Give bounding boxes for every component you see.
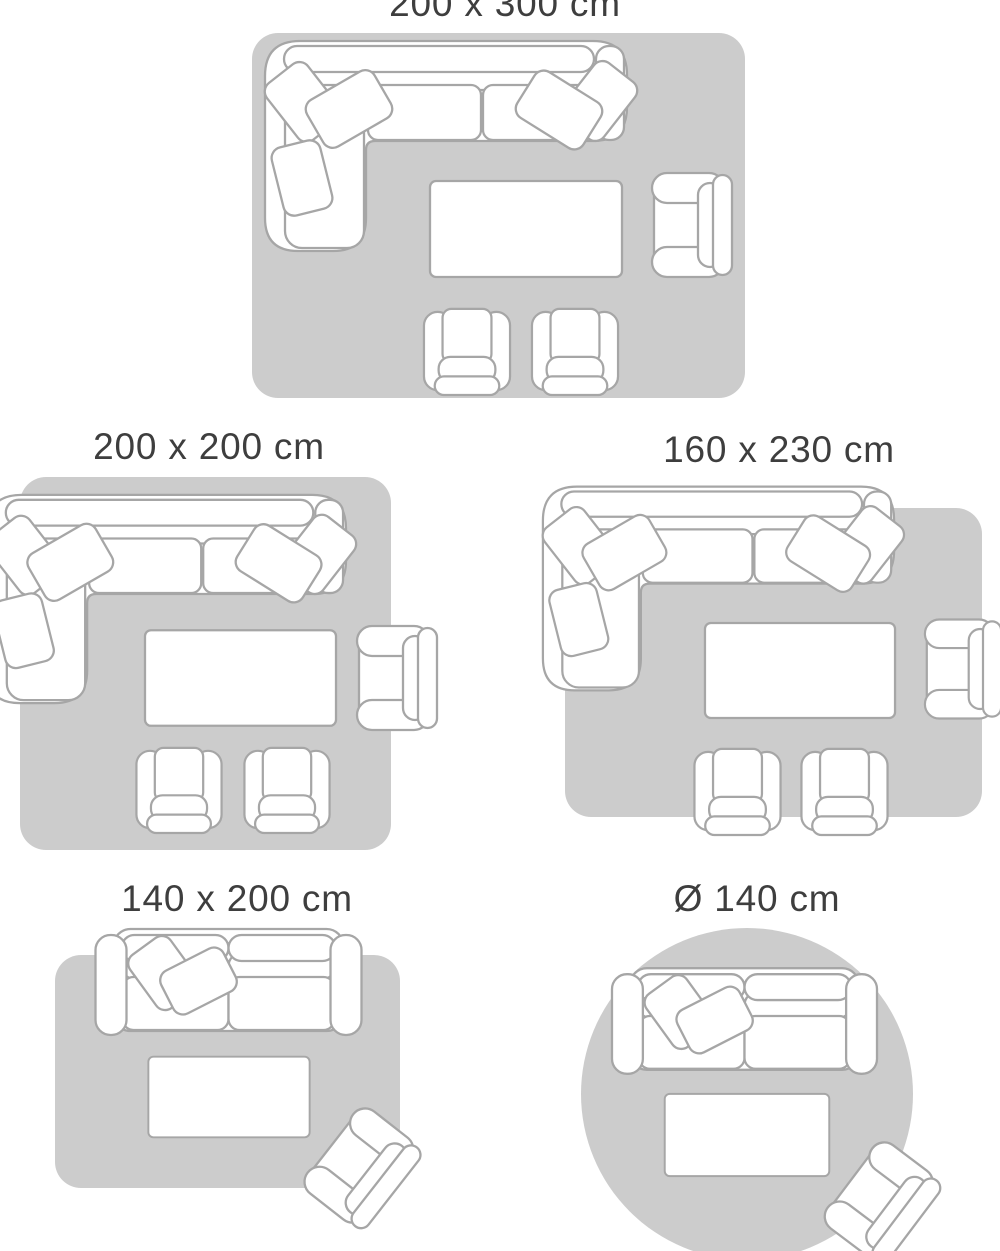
- size-label-160x230: 160 x 230 cm: [549, 430, 1000, 470]
- size-label-140x200: 140 x 200 cm: [7, 879, 467, 919]
- front-armchair-icon: [244, 748, 329, 833]
- armchair-icon: [652, 173, 732, 277]
- armchair-icon: [925, 619, 1000, 718]
- scene-diameter-140: [581, 928, 945, 1251]
- armchair-icon: [357, 626, 437, 730]
- coffee-table-icon: [145, 630, 336, 726]
- two-seat-sofa-icon: [96, 929, 362, 1035]
- size-label-200x200: 200 x 200 cm: [0, 427, 439, 467]
- coffee-table-icon: [665, 1094, 830, 1176]
- front-armchair-icon: [801, 749, 887, 835]
- two-seat-sofa-icon: [612, 968, 877, 1074]
- rug-size-guide: 200 x 300 cm 200 x 200 cm 160 x 230 cm 1…: [0, 0, 1000, 1251]
- front-armchair-icon: [694, 749, 780, 835]
- scene-200x200: [0, 477, 437, 850]
- coffee-table-icon: [430, 181, 622, 277]
- size-label-200x300: 200 x 300 cm: [275, 0, 735, 24]
- front-armchair-icon: [532, 309, 618, 395]
- size-label-diameter-140: Ø 140 cm: [527, 879, 987, 919]
- front-armchair-icon: [424, 309, 510, 395]
- scene-140x200: [55, 929, 426, 1234]
- rug-size-guide-illustration: [0, 0, 1000, 1251]
- front-armchair-icon: [136, 748, 221, 833]
- scene-200x300: [252, 33, 745, 398]
- coffee-table-icon: [148, 1057, 309, 1138]
- scene-160x230: [538, 487, 1000, 835]
- coffee-table-icon: [705, 623, 895, 718]
